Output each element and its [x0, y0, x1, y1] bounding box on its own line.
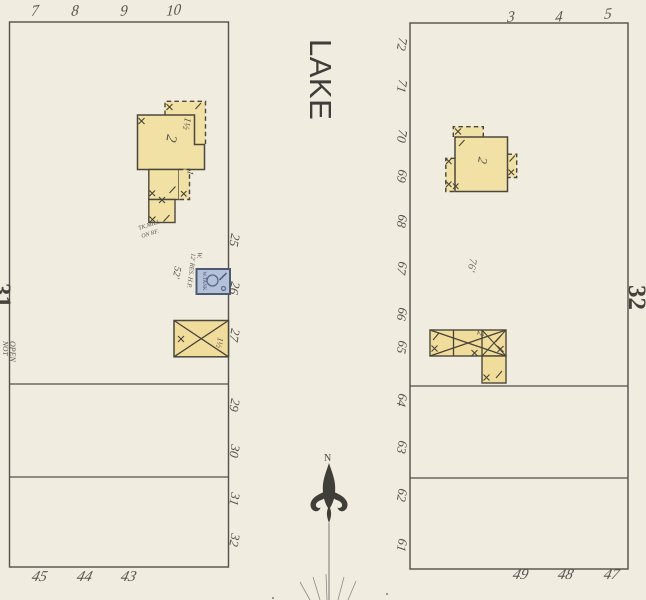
svg-text:N: N — [324, 453, 331, 464]
svg-text:61: 61 — [394, 537, 411, 552]
svg-text:LAKE: LAKE — [303, 39, 338, 120]
svg-text:71: 71 — [394, 78, 411, 93]
svg-text:1½: 1½ — [180, 116, 193, 131]
svg-text:32: 32 — [623, 285, 646, 310]
svg-text:3: 3 — [506, 8, 516, 26]
svg-text:31: 31 — [0, 283, 15, 308]
svg-text:OPEN: OPEN — [8, 341, 17, 363]
svg-text:31: 31 — [226, 490, 243, 506]
svg-text:W.TANK: W.TANK — [201, 272, 206, 291]
svg-text:76′: 76′ — [465, 257, 479, 273]
svg-text:10: 10 — [166, 1, 182, 20]
